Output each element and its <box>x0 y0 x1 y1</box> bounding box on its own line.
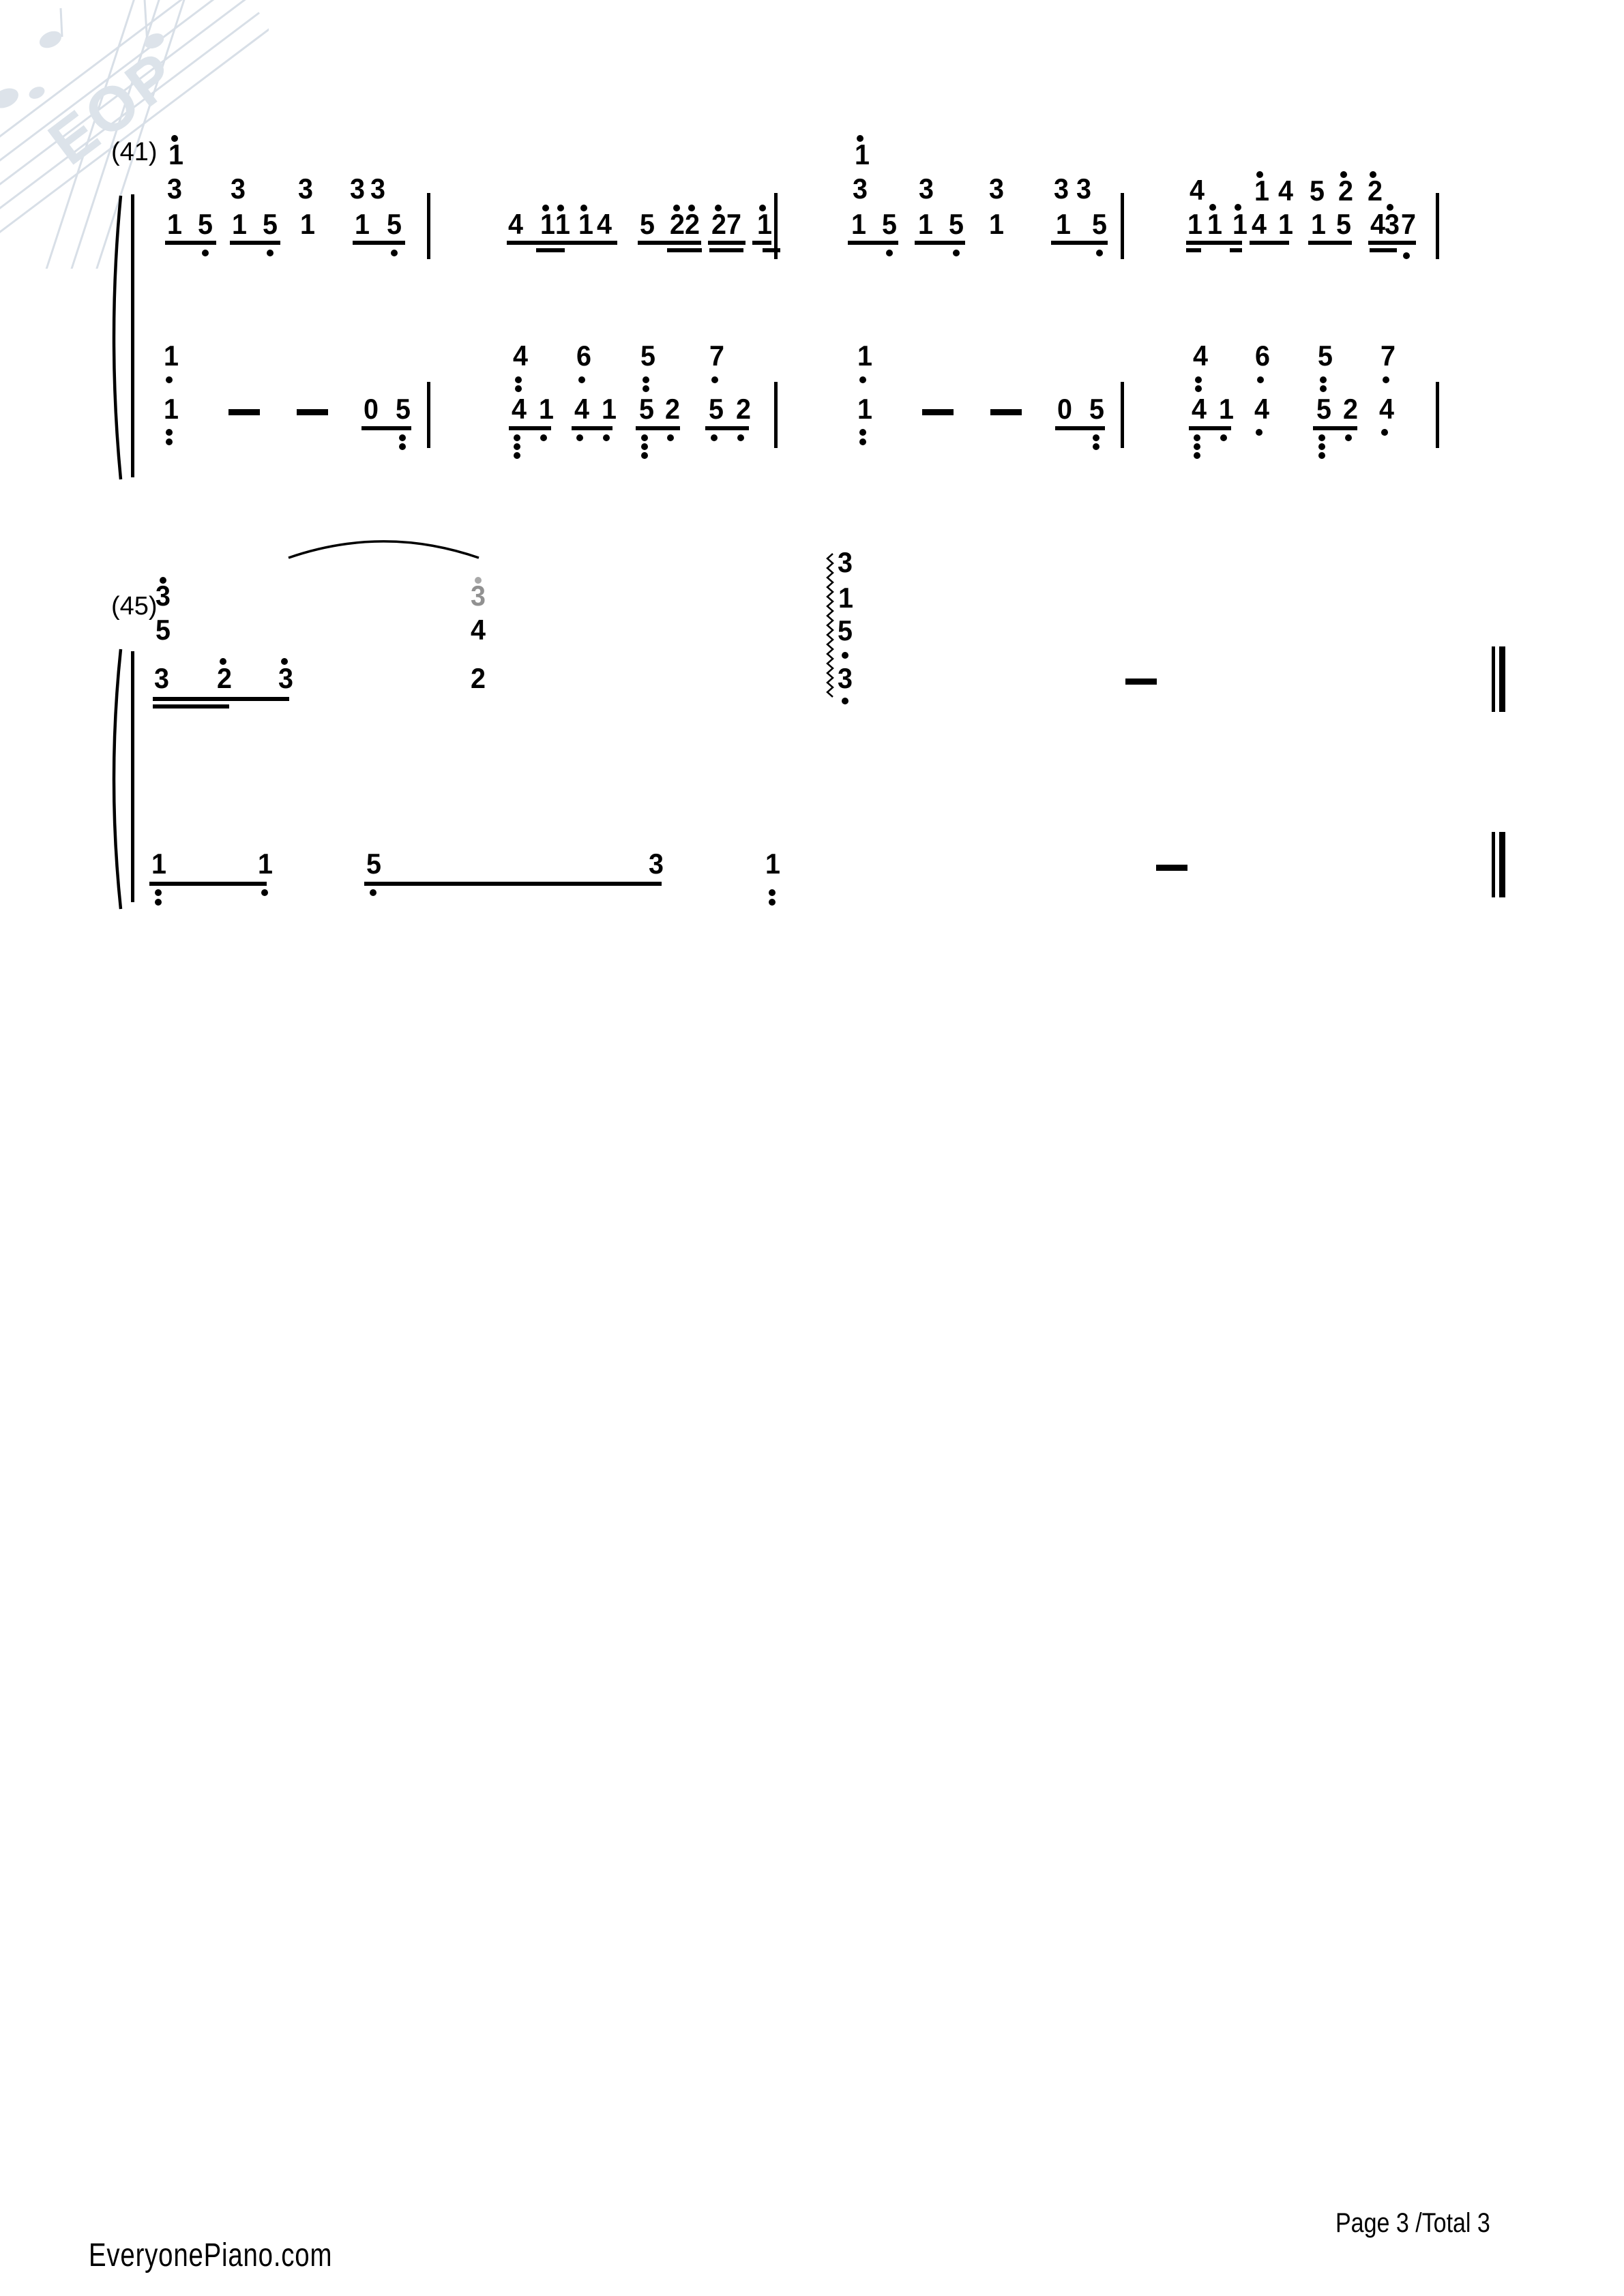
rest-dash <box>297 409 328 415</box>
octave-dot <box>578 376 585 383</box>
barline <box>774 193 778 259</box>
note-number: 1 <box>1278 210 1293 239</box>
octave-dot <box>1318 443 1325 450</box>
note-number: 1 <box>989 210 1004 239</box>
rest-dash <box>228 409 260 415</box>
note-number: 3 <box>838 548 853 577</box>
note-number: 7 <box>1401 210 1416 239</box>
note-number: 1 <box>1219 395 1234 423</box>
note-number: 5 <box>1316 395 1331 423</box>
octave-dot <box>667 434 674 441</box>
octave-dot <box>641 452 648 459</box>
note-number: 5 <box>396 395 411 423</box>
note-number: 2 <box>736 395 751 423</box>
octave-dot <box>842 698 848 704</box>
octave-dot <box>673 205 680 211</box>
note-number: 3 <box>853 175 868 203</box>
note-number: 6 <box>576 342 591 370</box>
octave-dot <box>1370 171 1376 178</box>
tie-slur-arc <box>286 537 481 561</box>
note-number: 1 <box>1207 210 1222 239</box>
beam-line <box>536 248 565 252</box>
note-number: 1 <box>300 210 315 239</box>
octave-dot <box>515 385 522 392</box>
note-number: 1 <box>838 584 853 612</box>
beam-line <box>149 882 267 886</box>
beam-line <box>1313 426 1357 430</box>
octave-dot <box>166 438 173 445</box>
note-number: 5 <box>1336 210 1351 239</box>
barline <box>1121 193 1124 259</box>
note-number: 4 <box>508 210 523 239</box>
octave-dot <box>475 577 482 584</box>
note-number: 5 <box>1318 342 1333 370</box>
octave-dot <box>641 434 648 441</box>
beam-line <box>638 241 701 245</box>
rest-dash <box>990 409 1022 415</box>
octave-dot <box>155 899 162 906</box>
beam-line <box>1230 248 1242 252</box>
note-number: 1 <box>757 210 772 239</box>
note-number: 1 <box>1232 210 1247 239</box>
note-number: 1 <box>168 140 183 169</box>
note-number: 1 <box>857 342 872 370</box>
octave-dot <box>1345 434 1352 441</box>
rest-dash <box>1156 865 1187 871</box>
beam-line <box>708 241 745 245</box>
note-number: 4 <box>1192 395 1207 423</box>
note-number: 1 <box>1311 210 1326 239</box>
octave-dot <box>370 889 377 896</box>
note-number: 2 <box>670 210 685 239</box>
note-number: 1 <box>167 210 182 239</box>
note-number: 5 <box>156 616 171 644</box>
octave-dot <box>1194 434 1200 441</box>
octave-dot <box>715 205 722 211</box>
beam-line <box>1051 241 1108 245</box>
beam-line <box>1368 241 1416 245</box>
beam-line <box>1186 241 1242 245</box>
system-brace <box>106 648 123 910</box>
note-number: 1 <box>1187 210 1202 239</box>
octave-dot <box>557 205 564 211</box>
beam-line <box>848 241 898 245</box>
beam-line <box>1186 248 1201 252</box>
beam-line <box>705 426 749 430</box>
octave-dot <box>281 658 288 665</box>
octave-dot <box>1318 452 1325 459</box>
beam-line <box>763 248 780 252</box>
octave-dot <box>1195 385 1202 392</box>
octave-dot <box>576 434 583 441</box>
beam-line <box>667 248 702 252</box>
note-number: 5 <box>1310 177 1325 205</box>
octave-dot <box>1381 429 1388 436</box>
octave-dot <box>1320 385 1327 392</box>
note-number: 3 <box>298 175 313 203</box>
note-number: 1 <box>258 850 273 878</box>
beam-line <box>153 697 289 701</box>
octave-dot <box>261 889 268 896</box>
note-number: 5 <box>640 342 655 370</box>
barline <box>427 382 430 448</box>
note-number: 1 <box>539 395 554 423</box>
barline <box>1121 382 1124 448</box>
octave-dot <box>1340 171 1347 178</box>
octave-dot <box>1383 376 1389 383</box>
note-number: 4 <box>1370 210 1385 239</box>
note-number: 4 <box>1193 342 1208 370</box>
note-number: 7 <box>726 210 741 239</box>
note-number: 3 <box>370 175 385 203</box>
note-number: 2 <box>1343 395 1358 423</box>
barline <box>131 651 134 902</box>
note-number: 1 <box>355 210 370 239</box>
octave-dot <box>1403 252 1410 259</box>
note-number: 1 <box>602 395 617 423</box>
note-number: 4 <box>1190 176 1205 205</box>
octave-dot <box>759 205 766 211</box>
note-number: 3 <box>989 175 1004 203</box>
note-number: 4 <box>1254 395 1269 423</box>
note-number: 4 <box>574 395 589 423</box>
octave-dot <box>399 434 406 441</box>
note-number: 0 <box>364 395 379 423</box>
octave-dot <box>859 376 866 383</box>
note-number: 4 <box>513 342 528 370</box>
octave-dot <box>1257 376 1264 383</box>
note-number: 5 <box>1089 395 1104 423</box>
system-brace <box>106 194 123 481</box>
footer-page-info: Page 3 /Total 3 <box>1335 2209 1490 2237</box>
beam-line <box>1308 241 1352 245</box>
score-area: (41)131531531331541114522271131531531331… <box>0 0 1624 2296</box>
octave-dot <box>711 434 718 441</box>
beam-line <box>915 241 965 245</box>
octave-dot <box>1235 204 1241 211</box>
note-number: 2 <box>665 395 680 423</box>
octave-dot <box>542 205 549 211</box>
octave-dot <box>1194 452 1200 459</box>
octave-dot <box>643 376 649 383</box>
octave-dot <box>171 135 178 142</box>
barline <box>1499 832 1505 897</box>
note-number: 1 <box>765 850 780 878</box>
beam-line <box>165 241 216 245</box>
beam-line <box>1370 248 1397 252</box>
note-number: 0 <box>1057 395 1072 423</box>
octave-dot <box>643 385 649 392</box>
beam-line <box>361 426 411 430</box>
note-number: 1 <box>555 210 570 239</box>
octave-dot <box>769 899 776 906</box>
note-number: 3 <box>1054 175 1069 203</box>
barline <box>1492 646 1495 712</box>
octave-dot <box>220 658 226 665</box>
note-number: 3 <box>154 664 169 693</box>
note-number: 5 <box>838 616 853 645</box>
note-number: 4 <box>1252 210 1267 239</box>
beam-line <box>509 426 551 430</box>
note-number: 3 <box>350 175 365 203</box>
note-number: 3 <box>1385 210 1400 239</box>
note-number: 2 <box>685 210 700 239</box>
note-number: 4 <box>471 616 486 644</box>
note-number: 3 <box>167 175 182 203</box>
note-number: 4 <box>512 395 527 423</box>
octave-dot <box>1220 434 1227 441</box>
note-number: 3 <box>471 582 486 610</box>
rest-dash <box>1125 679 1157 685</box>
note-number: 3 <box>156 582 171 610</box>
beam-line <box>1055 426 1105 430</box>
octave-dot <box>514 452 520 459</box>
note-number: 7 <box>709 342 724 370</box>
note-number: 1 <box>857 395 872 423</box>
octave-dot <box>1096 250 1103 256</box>
octave-dot <box>886 250 893 256</box>
note-number: 2 <box>217 664 232 693</box>
note-number: 1 <box>164 342 179 370</box>
measure-number-label: (41) <box>111 139 158 165</box>
octave-dot <box>514 434 520 441</box>
octave-dot <box>603 434 610 441</box>
sheet-page: EOP (41)13153153133154111452227113153153… <box>0 0 1624 2296</box>
note-number: 1 <box>578 210 593 239</box>
beam-line <box>353 241 405 245</box>
octave-dot <box>711 376 718 383</box>
note-number: 5 <box>949 210 964 239</box>
note-number: 7 <box>1381 342 1396 370</box>
note-number: 1 <box>164 395 179 423</box>
octave-dot <box>515 376 522 383</box>
note-number: 2 <box>471 664 486 693</box>
beam-line <box>752 241 771 245</box>
note-number: 1 <box>851 210 866 239</box>
note-number: 4 <box>1278 177 1293 205</box>
note-number: 1 <box>540 210 555 239</box>
octave-dot <box>859 438 866 445</box>
octave-dot <box>1195 376 1202 383</box>
beam-line <box>1250 241 1289 245</box>
note-number: 5 <box>387 210 402 239</box>
octave-dot <box>580 205 587 211</box>
note-number: 5 <box>1092 210 1107 239</box>
note-number: 3 <box>278 664 293 693</box>
beam-line <box>636 426 680 430</box>
beam-line <box>364 882 662 886</box>
rest-dash <box>922 409 954 415</box>
octave-dot <box>1320 376 1327 383</box>
footer-site-text: EveryonePiano.com <box>89 2239 332 2272</box>
note-number: 1 <box>232 210 247 239</box>
barline <box>1436 193 1439 259</box>
octave-dot <box>859 429 866 436</box>
beam-line <box>1189 426 1231 430</box>
octave-dot <box>1093 443 1099 450</box>
barline <box>1436 382 1439 448</box>
note-number: 4 <box>1379 395 1394 423</box>
note-number: 1 <box>151 850 166 878</box>
octave-dot <box>842 652 848 659</box>
note-number: 5 <box>709 395 724 423</box>
octave-dot <box>166 429 173 436</box>
note-number: 4 <box>597 210 612 239</box>
octave-dot <box>1209 204 1216 211</box>
beam-line <box>153 704 229 709</box>
beam-line <box>230 241 280 245</box>
barline <box>1499 646 1505 712</box>
octave-dot <box>391 250 398 256</box>
measure-number-label: (45) <box>111 593 158 619</box>
note-number: 2 <box>1368 177 1383 205</box>
beam-line <box>575 241 617 245</box>
beam-line <box>572 426 612 430</box>
note-number: 5 <box>639 395 654 423</box>
octave-dot <box>514 443 520 450</box>
note-number: 5 <box>640 210 655 239</box>
note-number: 3 <box>838 664 853 693</box>
octave-dot <box>1256 171 1263 178</box>
octave-dot <box>1387 204 1393 211</box>
octave-dot <box>769 889 776 896</box>
octave-dot <box>166 376 173 383</box>
octave-dot <box>1318 434 1325 441</box>
octave-dot <box>267 250 274 256</box>
note-number: 1 <box>1056 210 1071 239</box>
note-number: 5 <box>198 210 213 239</box>
octave-dot <box>155 889 162 896</box>
beam-line <box>709 248 743 252</box>
note-number: 3 <box>919 175 934 203</box>
octave-dot <box>399 443 406 450</box>
arpeggio-squiggle <box>825 554 835 701</box>
octave-dot <box>1256 429 1263 436</box>
barline <box>774 382 778 448</box>
note-number: 1 <box>918 210 933 239</box>
note-number: 2 <box>1338 177 1353 205</box>
barline <box>1492 832 1495 897</box>
octave-dot <box>737 434 744 441</box>
note-number: 5 <box>263 210 278 239</box>
octave-dot <box>202 250 209 256</box>
barline <box>131 194 134 477</box>
octave-dot <box>641 443 648 450</box>
note-number: 6 <box>1255 342 1270 370</box>
note-number: 5 <box>366 850 381 878</box>
note-number: 1 <box>855 140 870 169</box>
octave-dot <box>857 135 863 142</box>
octave-dot <box>688 205 695 211</box>
note-number: 5 <box>882 210 897 239</box>
barline <box>427 193 430 259</box>
note-number: 2 <box>711 210 726 239</box>
note-number: 3 <box>649 850 664 878</box>
octave-dot <box>1194 443 1200 450</box>
note-number: 1 <box>1254 177 1269 205</box>
note-number: 3 <box>231 175 246 203</box>
octave-dot <box>1093 434 1099 441</box>
octave-dot <box>160 577 166 584</box>
octave-dot <box>540 434 547 441</box>
octave-dot <box>953 250 960 256</box>
note-number: 3 <box>1076 175 1091 203</box>
